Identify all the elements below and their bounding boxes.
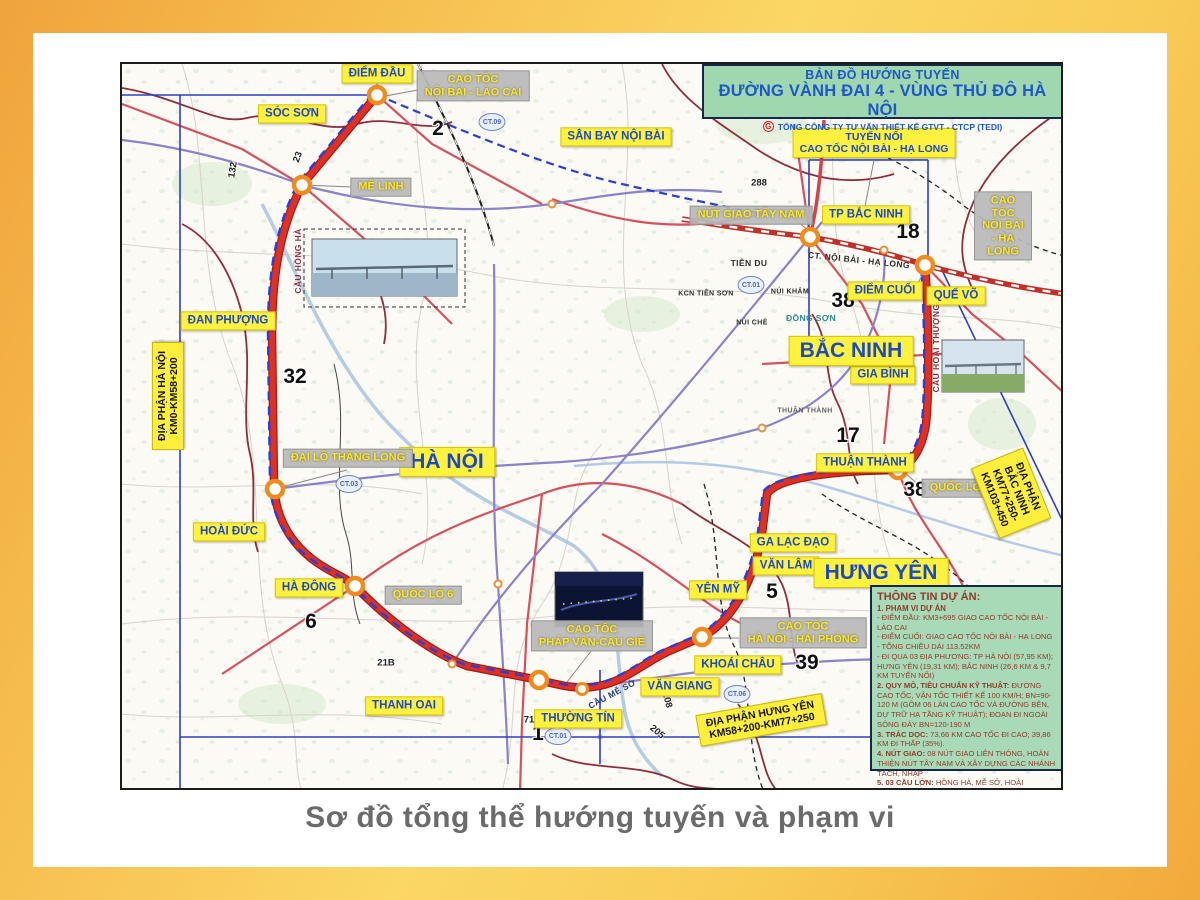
note-cau-hoai-thuong: CẦU HOÀI THƯỢNG bbox=[931, 304, 941, 393]
label-cao-toc-noi-bai-ha-long: CAO TỐC NỘI BÀI - HẠ LONG bbox=[974, 191, 1032, 260]
label-thanh-oai: THANH OAI bbox=[365, 696, 443, 715]
label-san-bay-noi-bai: SÂN BAY NỘI BÀI bbox=[560, 127, 671, 146]
note-kcn-tien-son: KCN TIÊN SƠN bbox=[678, 291, 734, 298]
badge-ct01-tien-du: CT.01 bbox=[738, 276, 765, 294]
map-area: ✳ BẢN ĐỒ HƯỚNG TUYẾN ĐƯỜNG VÀNH ĐAI 4 - … bbox=[120, 62, 1063, 790]
label-phap-van-cau-gie: CAO TỐC PHÁP VÂN-CẦU GIẼ bbox=[531, 620, 653, 651]
label-dan-phuong: ĐAN PHƯỢNG bbox=[181, 311, 276, 330]
label-quoc-lo-6: QUỐC LỘ 6 bbox=[385, 586, 462, 605]
label-que-vo: QUẾ VÕ bbox=[927, 286, 986, 305]
route-number-6: 6 bbox=[305, 610, 317, 634]
note-nui-kham: NÚI KHÁM bbox=[771, 289, 809, 296]
note-tien-du: TIÊN DU bbox=[731, 258, 768, 268]
info-line: - ĐIỂM ĐẦU: KM3+695 GIAO CAO TỐC NỘI BÀI… bbox=[877, 613, 1056, 632]
label-cao-toc-noi-bai-lao-cai: CAO TỐC NỘI BÀI - LÀO CAI bbox=[417, 70, 530, 101]
label-van-giang: VĂN GIANG bbox=[640, 677, 719, 696]
figure-caption: Sơ đồ tổng thể hướng tuyến và phạm vi bbox=[33, 801, 1167, 835]
white-card: ✳ BẢN ĐỒ HƯỚNG TUYẾN ĐƯỜNG VÀNH ĐAI 4 - … bbox=[33, 33, 1167, 867]
map-title-line1: BẢN ĐỒ HƯỚNG TUYẾN bbox=[704, 68, 1061, 82]
badge-ct09: CT.09 bbox=[479, 113, 506, 131]
label-bac-ninh: BẮC NINH bbox=[789, 336, 914, 366]
info-line: - TỔNG CHIỀU DÀI 113.52KM bbox=[877, 642, 1056, 652]
label-ga-lac-dao: GA LẠC ĐẠO bbox=[750, 533, 836, 552]
label-ha-noi-hai-phong: CAO TỐC HÀ NỘI - HẢI PHÒNG bbox=[740, 617, 867, 648]
project-info-panel: THÔNG TIN DỰ ÁN: 1. PHẠM VI DỰ ÁN - ĐIỂM… bbox=[870, 585, 1063, 771]
label-me-linh: MÊ LINH bbox=[350, 178, 411, 197]
label-diem-cuoi: ĐIỂM CUỐI bbox=[848, 281, 923, 300]
boundary-star-mark: ✳ bbox=[596, 732, 604, 742]
label-gia-binh: GIA BÌNH bbox=[850, 365, 915, 384]
label-ha-noi: HÀ NỘI bbox=[399, 447, 495, 477]
tedi-logo-icon: G bbox=[763, 121, 774, 132]
label-diem-dau: ĐIỂM ĐẦU bbox=[342, 64, 413, 83]
info-title: THÔNG TIN DỰ ÁN: bbox=[877, 591, 1056, 603]
label-dai-lo-thang-long: ĐẠI LỘ THĂNG LONG bbox=[283, 449, 413, 468]
poster-background: ✳ BẢN ĐỒ HƯỚNG TUYẾN ĐƯỜNG VÀNH ĐAI 4 - … bbox=[0, 0, 1200, 900]
note-nui-che: NÚI CHÈ bbox=[736, 320, 768, 327]
badge-ct01-thuong-tin: CT.01 bbox=[545, 727, 572, 745]
label-ha-dong: HÀ ĐÔNG bbox=[275, 578, 343, 597]
label-van-lam: VĂN LÂM bbox=[753, 556, 819, 575]
label-yen-my: YÊN MỸ bbox=[689, 580, 747, 599]
info-line: - ĐIỂM CUỐI: GIAO CAO TỐC NỘI BÀI - HẠ L… bbox=[877, 632, 1056, 642]
route-number-39: 39 bbox=[795, 651, 818, 675]
badge-ct06: CT.06 bbox=[724, 685, 751, 703]
bridge-photo-hoai-thuong bbox=[942, 340, 1024, 392]
label-hoai-duc: HOÀI ĐỨC bbox=[193, 522, 265, 541]
label-khoai-chau: KHOÁI CHÂU bbox=[694, 655, 781, 674]
org-name: TỔNG CÔNG TY TƯ VẤN THIẾT KẾ GTVT - CTCP… bbox=[778, 122, 1002, 132]
note-thuan-thanh-small: THUẬN THÀNH bbox=[777, 408, 832, 415]
label-dia-phan-ha-noi: ĐỊA PHẬN HÀ NỘI KM0-KM58+200 bbox=[152, 342, 184, 450]
info-section5: 5. 03 CẦU LỚN: HỒNG HÀ, MỄ SỞ, HOÀI THƯỢ… bbox=[877, 778, 1056, 790]
route-number-288: 288 bbox=[751, 178, 767, 189]
info-section1-head: 1. PHẠM VI DỰ ÁN bbox=[877, 604, 1056, 613]
route-number-21b: 21B bbox=[377, 658, 394, 669]
route-number-17: 17 bbox=[836, 424, 859, 448]
route-number-32: 32 bbox=[283, 365, 306, 389]
info-section3: 3. TRẮC DỌC: 73,66 KM CAO TỐC ĐI CAO; 39… bbox=[877, 730, 1056, 749]
label-tp-bac-ninh: TP BẮC NINH bbox=[822, 205, 910, 224]
info-section4: 4. NÚT GIAO: 08 NÚT GIAO LIÊN THÔNG, HOÀ… bbox=[877, 749, 1056, 778]
badge-ct03: CT.03 bbox=[336, 475, 363, 493]
info-line: - ĐI QUA 03 ĐỊA PHƯƠNG: TP HÀ NỘI (57,95… bbox=[877, 652, 1056, 681]
note-dong-son: ĐỒNG SƠN bbox=[786, 313, 836, 323]
label-thuan-thanh: THUẬN THÀNH bbox=[816, 453, 914, 472]
map-title-line2: ĐƯỜNG VÀNH ĐAI 4 - VÙNG THỦ ĐÔ HÀ NỘI bbox=[704, 82, 1061, 120]
note-cau-hong-ha: CẦU HỒNG HÀ bbox=[293, 228, 303, 293]
label-soc-son: SÓC SƠN bbox=[258, 104, 326, 123]
map-title-org: G TỔNG CÔNG TY TƯ VẤN THIẾT KẾ GTVT - CT… bbox=[704, 121, 1061, 132]
label-nut-giao-tay-nam: NÚT GIAO TÂY NAM bbox=[690, 206, 813, 225]
route-number-5: 5 bbox=[766, 580, 778, 604]
bridge-photo-me-so bbox=[555, 572, 643, 627]
route-number-2: 2 bbox=[432, 117, 444, 141]
info-section2: 2. QUY MÔ, TIÊU CHUẨN KỸ THUẬT: ĐƯỜNG CA… bbox=[877, 681, 1056, 730]
label-tuyen-noi: TUYẾN NỐI CAO TỐC NỘI BÀI - HẠ LONG bbox=[793, 128, 956, 158]
map-title-box: BẢN ĐỒ HƯỚNG TUYẾN ĐƯỜNG VÀNH ĐAI 4 - VÙ… bbox=[702, 64, 1063, 119]
label-hung-yen: HƯNG YÊN bbox=[814, 558, 949, 588]
label-thuong-tin: THƯỜNG TÍN bbox=[534, 709, 622, 728]
bridge-photo-hong-ha bbox=[304, 229, 465, 307]
